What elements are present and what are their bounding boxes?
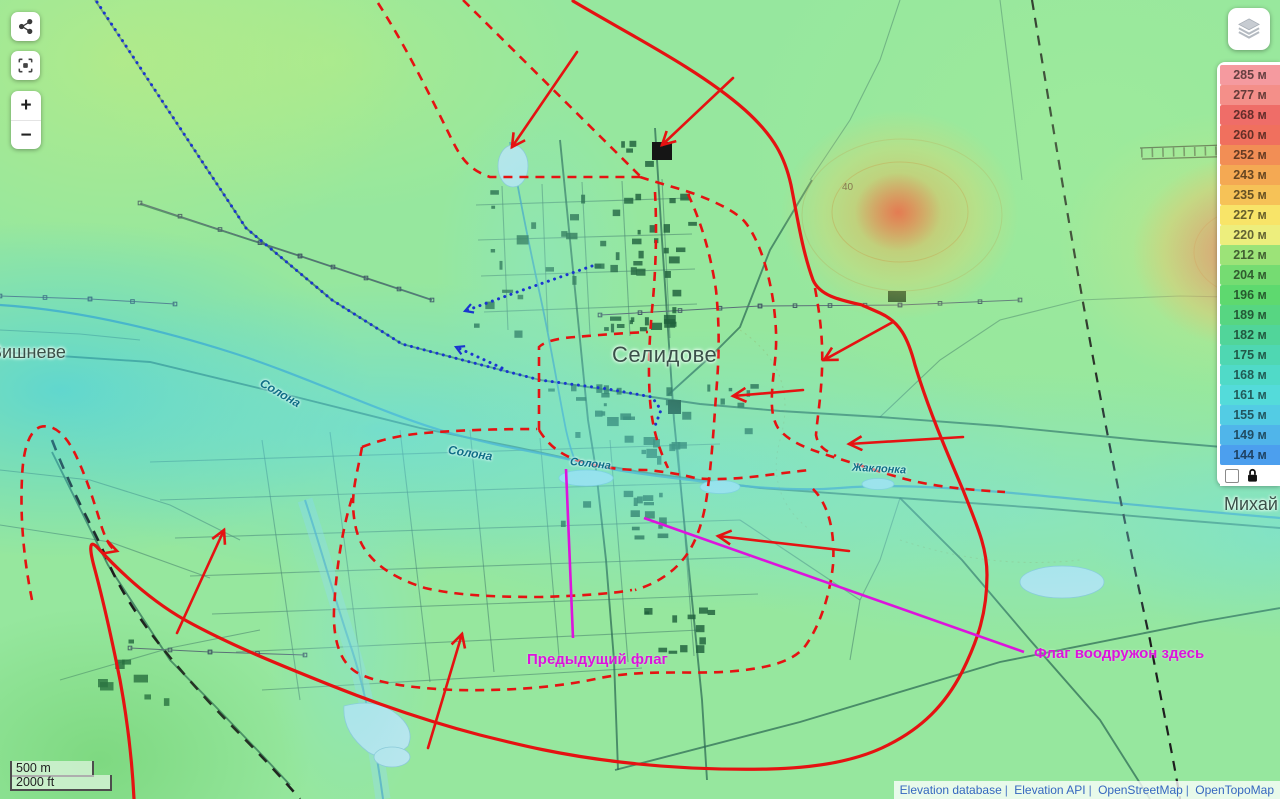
legend-rows: 285 м 277 м 268 м 260 м 252 м — [1220, 65, 1280, 465]
legend-row-label: 260 м — [1233, 128, 1267, 142]
legend-row: 149 м — [1220, 425, 1280, 445]
elevation-legend: 285 м 277 м 268 м 260 м 252 м — [1217, 62, 1280, 486]
legend-row-label: 227 м — [1233, 208, 1267, 222]
legend-row: 268 м — [1220, 105, 1280, 125]
map-app: Селидове Вишневе Михай Солона Солона Сол… — [0, 0, 1280, 799]
attribution-link[interactable]: OpenStreetMap — [1098, 783, 1183, 797]
legend-controls — [1220, 465, 1280, 486]
attribution-separator: | — [1186, 783, 1189, 797]
legend-row-label: 243 м — [1233, 168, 1267, 182]
town-label-vyshneve: Вишневе — [0, 342, 66, 363]
legend-row: 285 м — [1220, 65, 1280, 85]
legend-row: 204 м — [1220, 265, 1280, 285]
scale-imperial: 2000 ft — [10, 775, 112, 791]
red-front-line — [91, 1, 987, 799]
lock-icon[interactable] — [1246, 468, 1259, 483]
legend-row: 277 м — [1220, 85, 1280, 105]
legend-row: 155 м — [1220, 405, 1280, 425]
legend-row: 212 м — [1220, 245, 1280, 265]
legend-row-label: 252 м — [1233, 148, 1267, 162]
legend-row: 182 м — [1220, 325, 1280, 345]
legend-row-label: 268 м — [1233, 108, 1267, 122]
legend-row: 189 м — [1220, 305, 1280, 325]
legend-row-label: 285 м — [1233, 68, 1267, 82]
legend-row-label: 182 м — [1233, 328, 1267, 342]
layers-icon — [1235, 15, 1263, 43]
legend-row-label: 204 м — [1233, 268, 1267, 282]
annotation-overlay — [0, 0, 1280, 799]
legend-row-label: 161 м — [1233, 388, 1267, 402]
legend-row: 227 м — [1220, 205, 1280, 225]
legend-row-label: 144 м — [1233, 448, 1267, 462]
legend-row: 196 м — [1220, 285, 1280, 305]
attribution-link[interactable]: Elevation API — [1014, 783, 1085, 797]
legend-row-label: 189 м — [1233, 308, 1267, 322]
legend-row-label: 235 м — [1233, 188, 1267, 202]
legend-row-label: 149 м — [1233, 428, 1267, 442]
legend-row-label: 277 м — [1233, 88, 1267, 102]
red-dashed-lines — [21, 0, 1005, 690]
legend-row-label: 175 м — [1233, 348, 1267, 362]
legend-row: 220 м — [1220, 225, 1280, 245]
legend-row: 175 м — [1220, 345, 1280, 365]
flag-pointer-lines — [566, 469, 1024, 652]
attribution-link[interactable]: OpenTopoMap — [1195, 783, 1274, 797]
legend-row: 252 м — [1220, 145, 1280, 165]
share-icon — [17, 18, 34, 35]
attribution-bar: Elevation database| Elevation API| OpenS… — [894, 781, 1280, 799]
legend-row: 243 м — [1220, 165, 1280, 185]
legend-row-label: 196 м — [1233, 288, 1267, 302]
legend-row: 168 м — [1220, 365, 1280, 385]
layers-button[interactable] — [1228, 8, 1270, 50]
legend-row: 161 м — [1220, 385, 1280, 405]
attribution-separator: | — [1089, 783, 1092, 797]
legend-row-label: 168 м — [1233, 368, 1267, 382]
focus-icon — [17, 57, 34, 74]
legend-row: 260 м — [1220, 125, 1280, 145]
locate-button[interactable] — [11, 51, 40, 80]
legend-row-label: 220 м — [1233, 228, 1267, 242]
blue-advance-arrows — [97, 2, 661, 426]
legend-checkbox[interactable] — [1225, 469, 1239, 483]
share-button[interactable] — [11, 12, 40, 41]
legend-row-label: 155 м — [1233, 408, 1267, 422]
attribution-separator: | — [1005, 783, 1008, 797]
zoom-control: + − — [11, 91, 41, 149]
legend-row: 235 м — [1220, 185, 1280, 205]
town-label-mykhailivka: Михай — [1224, 494, 1278, 515]
city-label-selydove: Селидове — [612, 342, 717, 368]
legend-row-label: 212 м — [1233, 248, 1267, 262]
annotation-flag-here: Флаг воодружон здесь — [1034, 645, 1204, 662]
annotation-previous-flag: Предыдущий флаг — [527, 651, 668, 668]
legend-row: 144 м — [1220, 445, 1280, 465]
contour-label-40: 40 — [842, 182, 853, 193]
zoom-in-button[interactable]: + — [11, 91, 41, 121]
attribution-link[interactable]: Elevation database — [900, 783, 1002, 797]
zoom-out-button[interactable]: − — [11, 121, 41, 149]
scale-control: 500 m 2000 ft — [10, 761, 112, 791]
